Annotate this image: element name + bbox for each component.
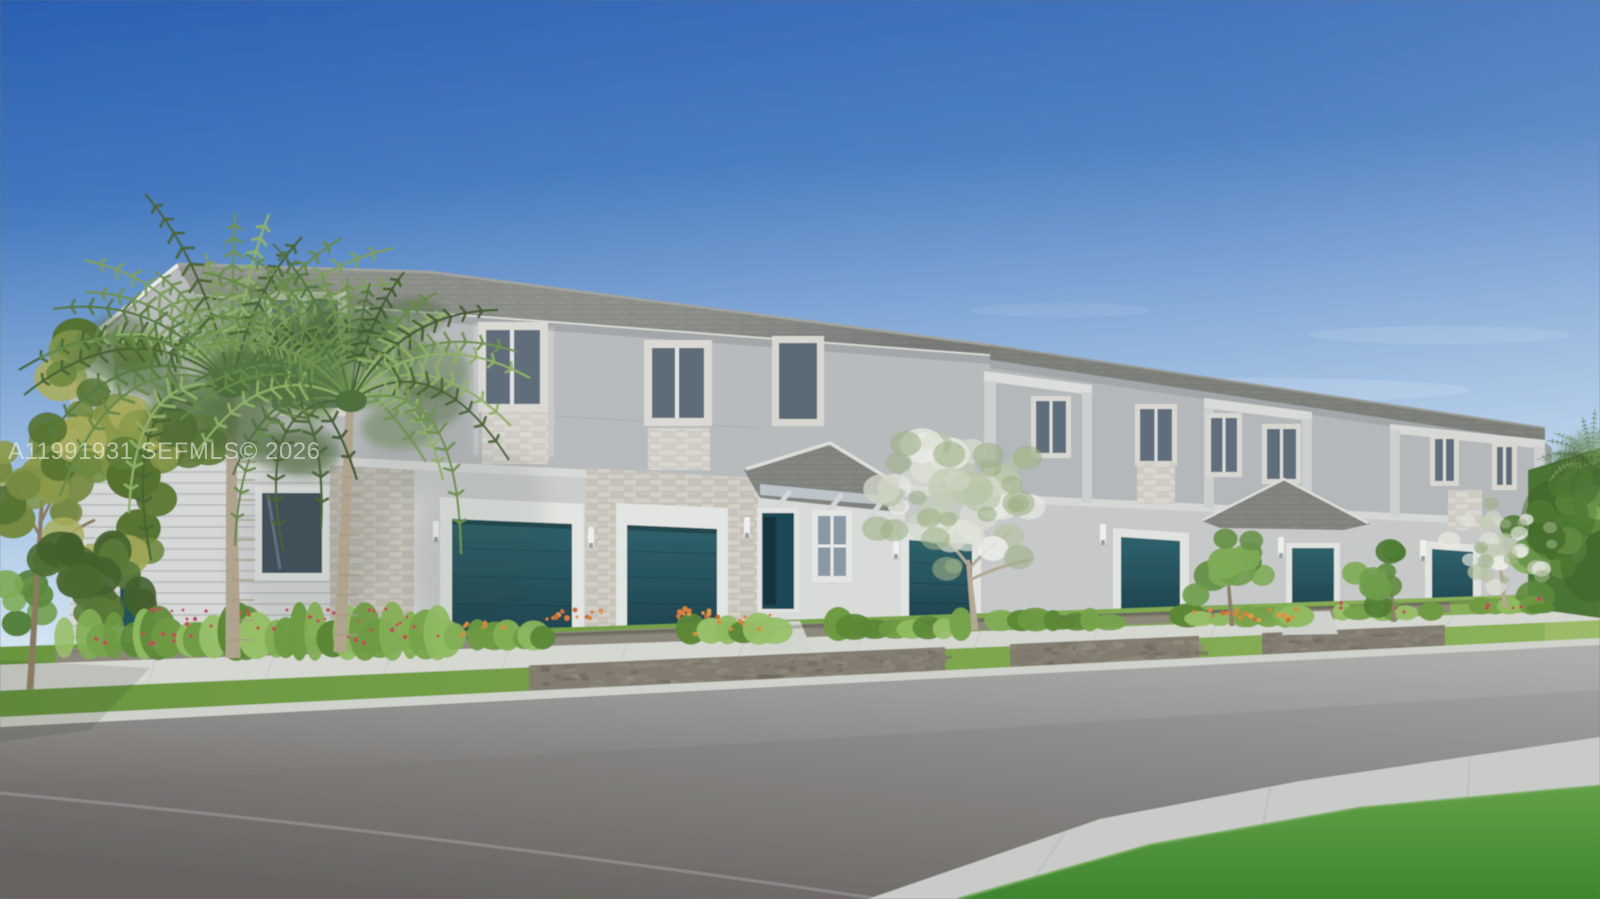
svg-text:A11991931 SEFMLS© 2026: A11991931 SEFMLS© 2026 xyxy=(8,438,320,465)
